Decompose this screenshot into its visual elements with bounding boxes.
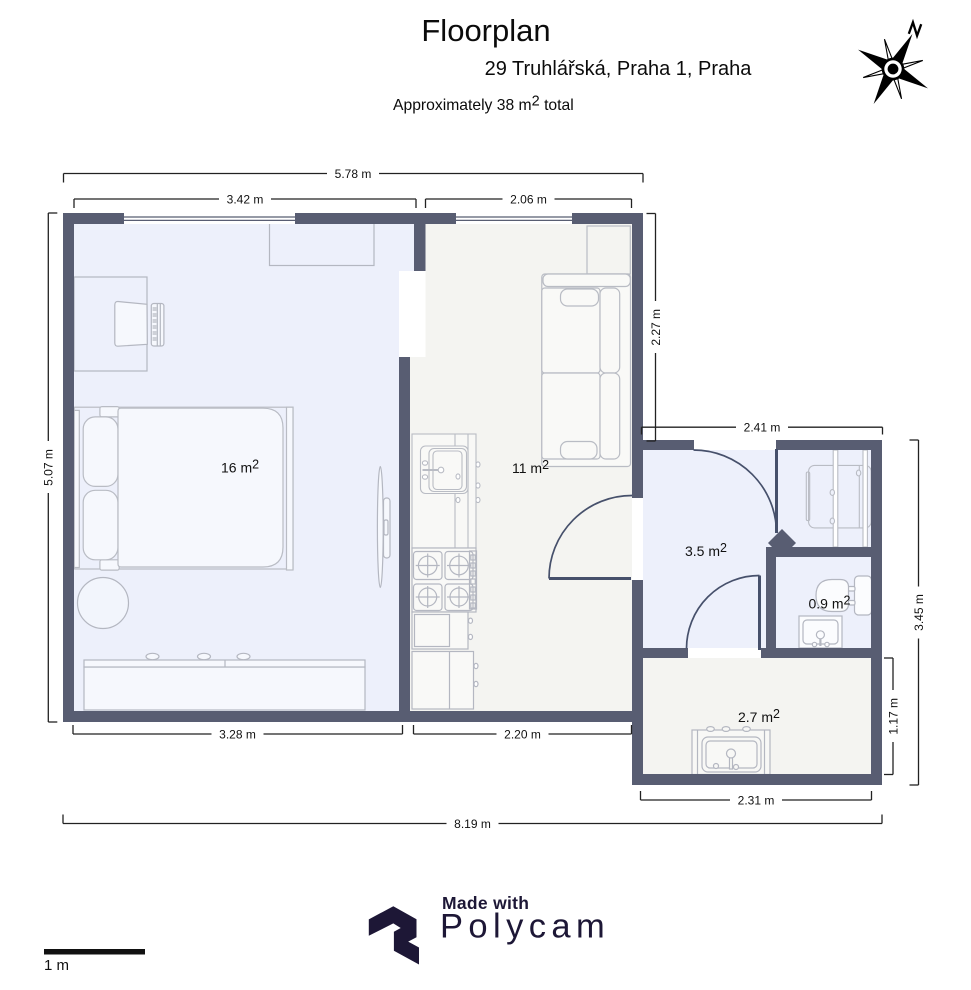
svg-text:Polycam: Polycam	[440, 908, 610, 946]
svg-text:1.17 m: 1.17 m	[886, 698, 900, 735]
svg-text:Floorplan: Floorplan	[421, 13, 550, 48]
svg-text:Approximately 38 m2 total: Approximately 38 m2 total	[393, 94, 574, 115]
svg-text:2.20 m: 2.20 m	[504, 727, 541, 741]
svg-text:2.31 m: 2.31 m	[738, 793, 775, 807]
svg-text:2.41 m: 2.41 m	[744, 421, 781, 435]
svg-text:3.42 m: 3.42 m	[227, 192, 264, 206]
svg-text:2.27 m: 2.27 m	[649, 309, 663, 346]
svg-text:3.28 m: 3.28 m	[219, 727, 256, 741]
svg-text:2.06 m: 2.06 m	[510, 192, 547, 206]
svg-text:29 Truhlářská, Praha 1, Praha: 29 Truhlářská, Praha 1, Praha	[485, 58, 753, 80]
svg-text:5.78 m: 5.78 m	[335, 167, 372, 181]
svg-text:3.45 m: 3.45 m	[912, 594, 926, 631]
svg-text:8.19 m: 8.19 m	[454, 817, 491, 831]
svg-text:1 m: 1 m	[44, 957, 69, 974]
svg-text:5.07 m: 5.07 m	[42, 449, 56, 486]
